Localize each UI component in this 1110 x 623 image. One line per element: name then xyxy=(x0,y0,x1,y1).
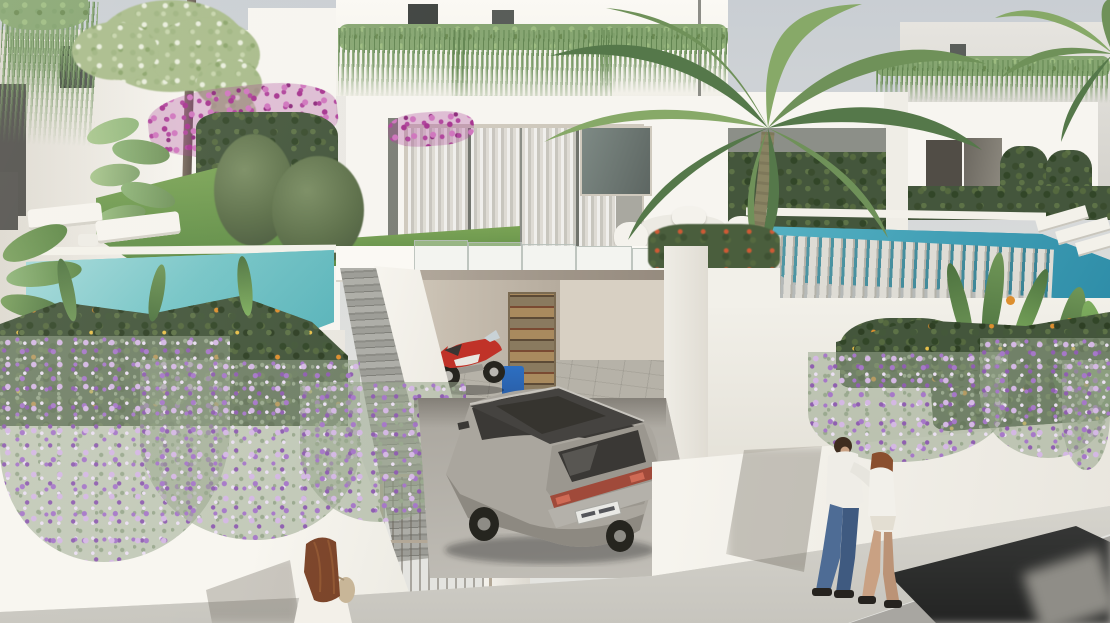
woman-leg-left xyxy=(862,530,881,600)
main-parapet-hanging-1 xyxy=(338,28,468,100)
garage-lintel-shadow xyxy=(414,270,666,280)
suv-rim-left xyxy=(478,518,491,531)
pedestrian-bag xyxy=(337,577,355,603)
woman-shorts xyxy=(870,516,896,530)
vine-clump-top-left xyxy=(0,0,88,30)
palm-frond xyxy=(995,10,1110,54)
walking-couple xyxy=(780,424,920,612)
garage-back-wall xyxy=(560,280,666,364)
left-side-table xyxy=(78,234,98,246)
man-shoe-right xyxy=(834,590,854,598)
palm-frond xyxy=(1061,54,1110,142)
suv-car xyxy=(430,378,674,576)
woman-shoe-left xyxy=(858,596,876,604)
woman-pedestrian-bottom xyxy=(276,530,376,623)
left-building-dark-opening xyxy=(0,172,18,230)
man-shoe-left xyxy=(812,588,832,596)
flower-cascade-right-3 xyxy=(1062,360,1110,470)
woman-shoe-right xyxy=(884,600,902,608)
villa-render-scene xyxy=(0,0,1110,623)
woman-top xyxy=(868,467,896,520)
woman-leg-right xyxy=(883,532,899,602)
man-shirt xyxy=(826,451,864,507)
palm-top-right xyxy=(995,0,1110,150)
palm-frond xyxy=(768,128,888,238)
suv-rim-right xyxy=(614,530,626,542)
palm-frond xyxy=(544,110,768,142)
tree-canopy-3 xyxy=(72,22,158,80)
palm-frond xyxy=(1001,48,1110,78)
motorcycle-front-rim xyxy=(490,368,499,377)
bird-of-paradise-flower-1 xyxy=(1006,296,1015,305)
